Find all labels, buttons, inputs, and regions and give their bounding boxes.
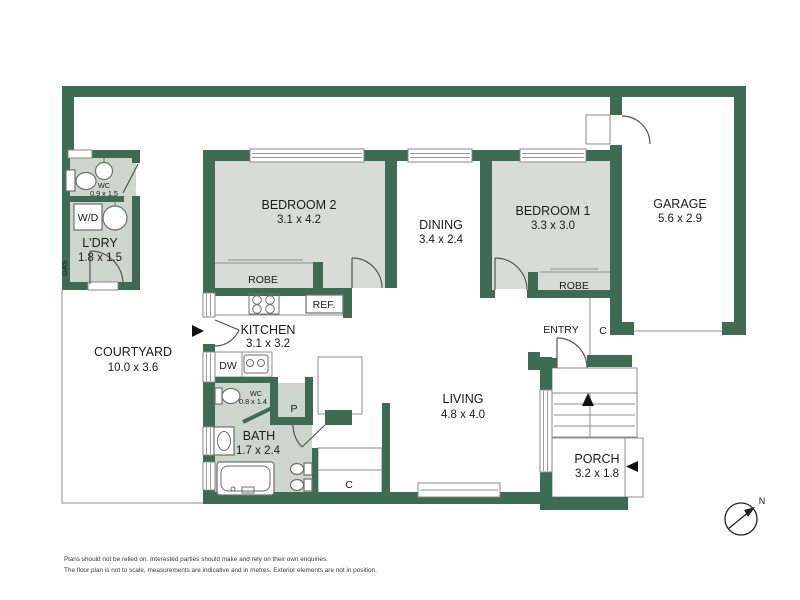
laundry-bottom-window	[88, 282, 118, 290]
disclaimer-line-1: Plans should not be relied on. Intereste…	[64, 556, 328, 563]
wc-lower-dims: 0.8 x 1.4	[239, 397, 267, 406]
robe1-stub	[528, 272, 538, 298]
kitchen-label: KITCHEN	[241, 323, 296, 337]
bedroom2-east-wall	[385, 161, 397, 288]
bath-door-wall	[325, 410, 352, 425]
west-wall-seg	[203, 382, 215, 427]
porch-label: PORCH	[574, 452, 619, 466]
bidet-bowl	[291, 480, 304, 491]
laundry-label: L'DRY	[82, 236, 118, 250]
kitchen-dims: 3.1 x 3.2	[246, 338, 290, 350]
laundry-right-wall-upper	[132, 150, 140, 163]
garage-south-stub	[610, 322, 634, 335]
entry-label: ENTRY	[543, 324, 578, 336]
bath-top-wall	[270, 417, 313, 425]
stair-landing	[552, 368, 637, 393]
west-wall-seg	[203, 455, 215, 462]
garage-dims: 5.6 x 2.9	[658, 213, 702, 225]
wc-lower-cistern	[215, 388, 222, 404]
bedroom1-window	[520, 149, 586, 162]
fridge-label: REF.	[313, 299, 336, 311]
bedroom1-dims: 3.3 x 3.0	[531, 220, 575, 232]
bedroom2-window	[250, 149, 364, 162]
north-wall-seg	[472, 150, 520, 161]
pantry-left-wall	[270, 377, 278, 419]
garage-west-wall	[610, 145, 622, 330]
garage-west-wall-upper	[610, 97, 622, 115]
disclaimer-line-2: The floor plan is not to scale, measurem…	[64, 567, 377, 574]
toilet-bowl-2	[291, 464, 304, 475]
dining-window	[408, 149, 472, 162]
west-window-3	[203, 427, 215, 455]
bath-dims: 1.7 x 2.4	[236, 445, 281, 457]
bidet-cistern	[304, 479, 312, 491]
entry-west-stub	[528, 352, 540, 370]
wc-basin	[96, 163, 113, 180]
outer-right-wall	[734, 97, 746, 335]
floor-plan: WC 0.9 x 1.5 W/D L'DRY 1.8 x 1.5 GAS BED…	[0, 0, 800, 600]
west-window-2	[203, 352, 215, 382]
courtyard-label: COURTYARD	[94, 345, 172, 359]
bedroom1-west-wall	[480, 161, 492, 298]
storage-void	[318, 357, 362, 414]
floor-plan-page: WC 0.9 x 1.5 W/D L'DRY 1.8 x 1.5 GAS BED…	[0, 0, 800, 600]
dishwasher-label: DW	[219, 360, 237, 372]
kitchen-door-gap	[203, 318, 215, 344]
living-label: LIVING	[443, 392, 484, 406]
south-wall-porch	[552, 497, 628, 510]
toilet-cistern-2	[304, 463, 312, 475]
bath-door-gap	[313, 417, 325, 425]
garage-side-door-leaf	[586, 115, 610, 144]
entry-front-wall-right	[587, 355, 632, 367]
gas-label: GAS	[60, 260, 69, 276]
entry-front-wall-left	[540, 358, 557, 368]
dining-label: DINING	[419, 218, 463, 232]
wc-upper-dims: 0.9 x 1.5	[90, 189, 118, 198]
living-east-window	[540, 390, 552, 472]
cupboard-east-wall	[382, 403, 390, 495]
north-wall-seg	[364, 150, 408, 161]
bedroom1-door-gap	[495, 289, 527, 299]
laundry-right-wall-lower	[132, 196, 140, 290]
cupboard-bath-label: C	[345, 479, 353, 491]
laundry-top-window	[68, 150, 92, 158]
bath-east-wall	[312, 448, 318, 495]
outer-top-wall	[62, 86, 746, 97]
toilet-cistern	[66, 170, 75, 191]
wc-lower-bowl	[222, 389, 240, 404]
bedroom2-label: BEDROOM 2	[261, 198, 336, 212]
robe1-label: ROBE	[559, 280, 589, 292]
bedroom2-dims: 3.1 x 4.2	[277, 214, 321, 226]
robe2-stub	[313, 262, 323, 288]
north-wall-seg	[203, 150, 250, 161]
toilet-bowl	[76, 173, 96, 190]
courtyard-dims: 10.0 x 3.6	[108, 362, 159, 374]
living-dims: 4.8 x 4.0	[441, 409, 485, 421]
robe2-label: ROBE	[248, 274, 278, 286]
west-window-4	[203, 462, 215, 490]
dining-dims: 3.4 x 2.4	[419, 234, 464, 246]
kitchen-wall-stub	[343, 288, 352, 318]
cupboard-entry-label: C	[599, 325, 607, 337]
pantry-right-wall	[305, 377, 313, 419]
living-east-wall-lower	[540, 472, 552, 510]
west-wall-seg	[203, 344, 215, 352]
outer-left-wall	[62, 97, 74, 158]
laundry-dims: 1.8 x 1.5	[78, 252, 122, 264]
garage-label: GARAGE	[653, 197, 707, 211]
north-label: N	[759, 496, 766, 506]
bath-label: BATH	[243, 429, 275, 443]
pantry-label: P	[290, 403, 297, 415]
bedroom1-label: BEDROOM 1	[515, 204, 590, 218]
washer-dryer-label: W/D	[78, 212, 99, 224]
garage-corner-stub	[722, 322, 734, 335]
west-window-1	[203, 293, 215, 317]
laundry-tub	[103, 206, 127, 230]
west-wall-seg	[203, 161, 215, 293]
porch-dims: 3.2 x 1.8	[575, 468, 619, 480]
